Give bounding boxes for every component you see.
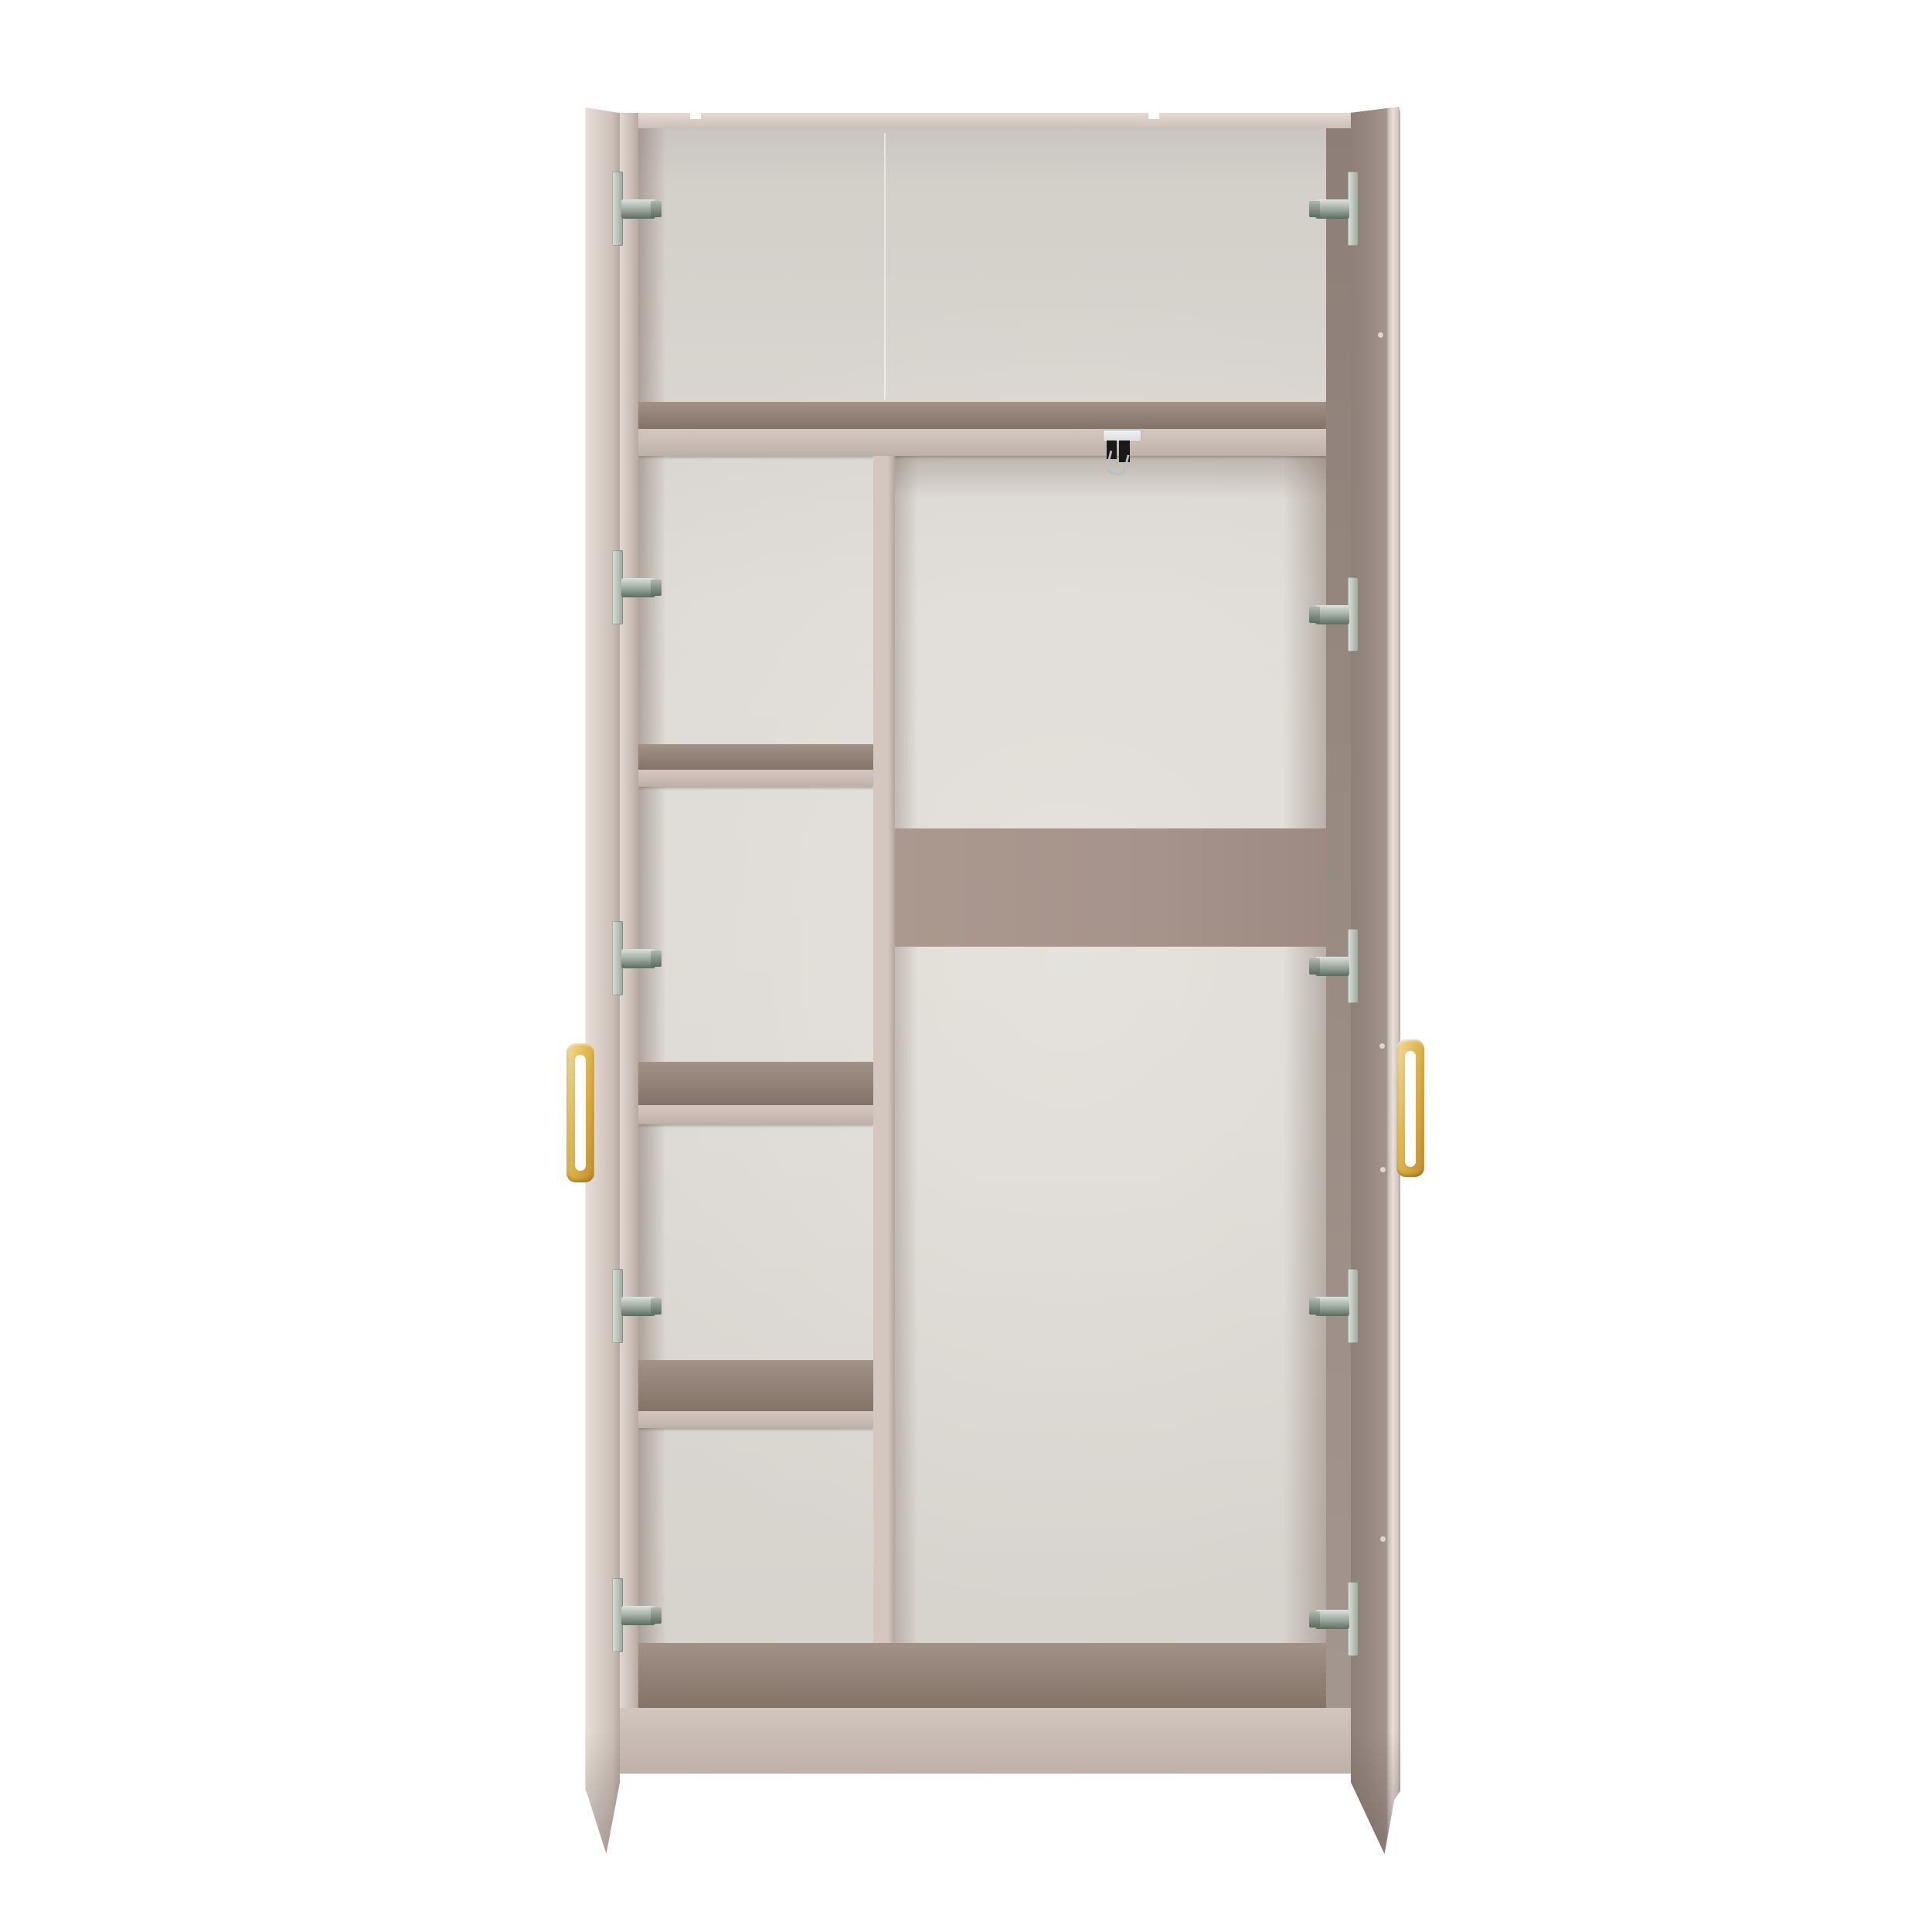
hinge-cap — [1309, 958, 1320, 975]
hinge-cap — [651, 951, 662, 967]
hinge-plate — [1348, 172, 1359, 246]
shelf-3-front-edge — [638, 1411, 873, 1428]
cabinet-floor-surface — [638, 1643, 1331, 1708]
hinge-cap — [1309, 1298, 1320, 1315]
hinge-plate — [1348, 1269, 1359, 1343]
right-hinge-4 — [1309, 1269, 1359, 1343]
back-rail-board — [895, 828, 1331, 947]
divider-shadow — [895, 456, 918, 1643]
hinge-cap — [1309, 201, 1320, 217]
right-hinge-2 — [1309, 577, 1359, 651]
handle-opening — [575, 1055, 586, 1171]
hinge-cap — [1309, 607, 1320, 623]
shelf-2-front-edge — [638, 1105, 873, 1124]
right-side-panel-face — [1326, 128, 1351, 1708]
left-hinge-1 — [612, 172, 662, 246]
shelf-1-surface — [638, 744, 873, 770]
left-door-handle — [566, 1043, 594, 1182]
left-hinge-4 — [612, 1269, 662, 1343]
shelf-2-surface — [638, 1062, 873, 1105]
hinge-cap — [651, 201, 662, 217]
right-hinge-5 — [1309, 1582, 1359, 1656]
back-panel-seam — [884, 133, 886, 400]
hinge-plate — [1348, 1582, 1359, 1656]
hinge-cap — [1309, 1611, 1320, 1628]
hinge-cap — [651, 580, 662, 596]
top-shelf-front-edge — [638, 429, 1331, 456]
shelf-3-surface — [638, 1360, 873, 1411]
left-hinge-2 — [612, 550, 662, 624]
top-edge-notch — [690, 111, 701, 119]
right-hinge-3 — [1309, 929, 1359, 1003]
right-door-handle — [1396, 1039, 1424, 1177]
center-divider-panel — [873, 456, 895, 1708]
hinge-cap — [651, 1607, 662, 1624]
right-hinge-1 — [1309, 172, 1359, 246]
screw-dot — [1378, 332, 1383, 338]
hinge-arm — [1315, 957, 1349, 976]
hinge-plate — [1348, 929, 1359, 1003]
hinge-arm — [1315, 1610, 1349, 1629]
screw-dot — [1379, 1043, 1385, 1049]
hinge-arm — [1315, 605, 1349, 624]
hinge-arm — [1315, 199, 1349, 219]
left-hinge-5 — [612, 1578, 662, 1652]
shelf-1-front-edge — [638, 770, 873, 787]
left-hinge-3 — [612, 921, 662, 995]
screw-dot — [1380, 1536, 1386, 1542]
product-image-stage — [0, 0, 1932, 1932]
hinge-plate — [1348, 577, 1359, 651]
top-edge-notch — [1148, 111, 1159, 119]
top-panel-edge — [611, 113, 1383, 128]
screw-dot — [1380, 1167, 1386, 1172]
handle-opening — [1405, 1051, 1416, 1167]
hinge-arm — [1315, 1297, 1349, 1316]
left-wall-shadow — [638, 128, 666, 402]
base-front-panel — [617, 1708, 1383, 1774]
top-shelf-surface — [638, 402, 1331, 429]
hinge-cap — [651, 1298, 662, 1315]
